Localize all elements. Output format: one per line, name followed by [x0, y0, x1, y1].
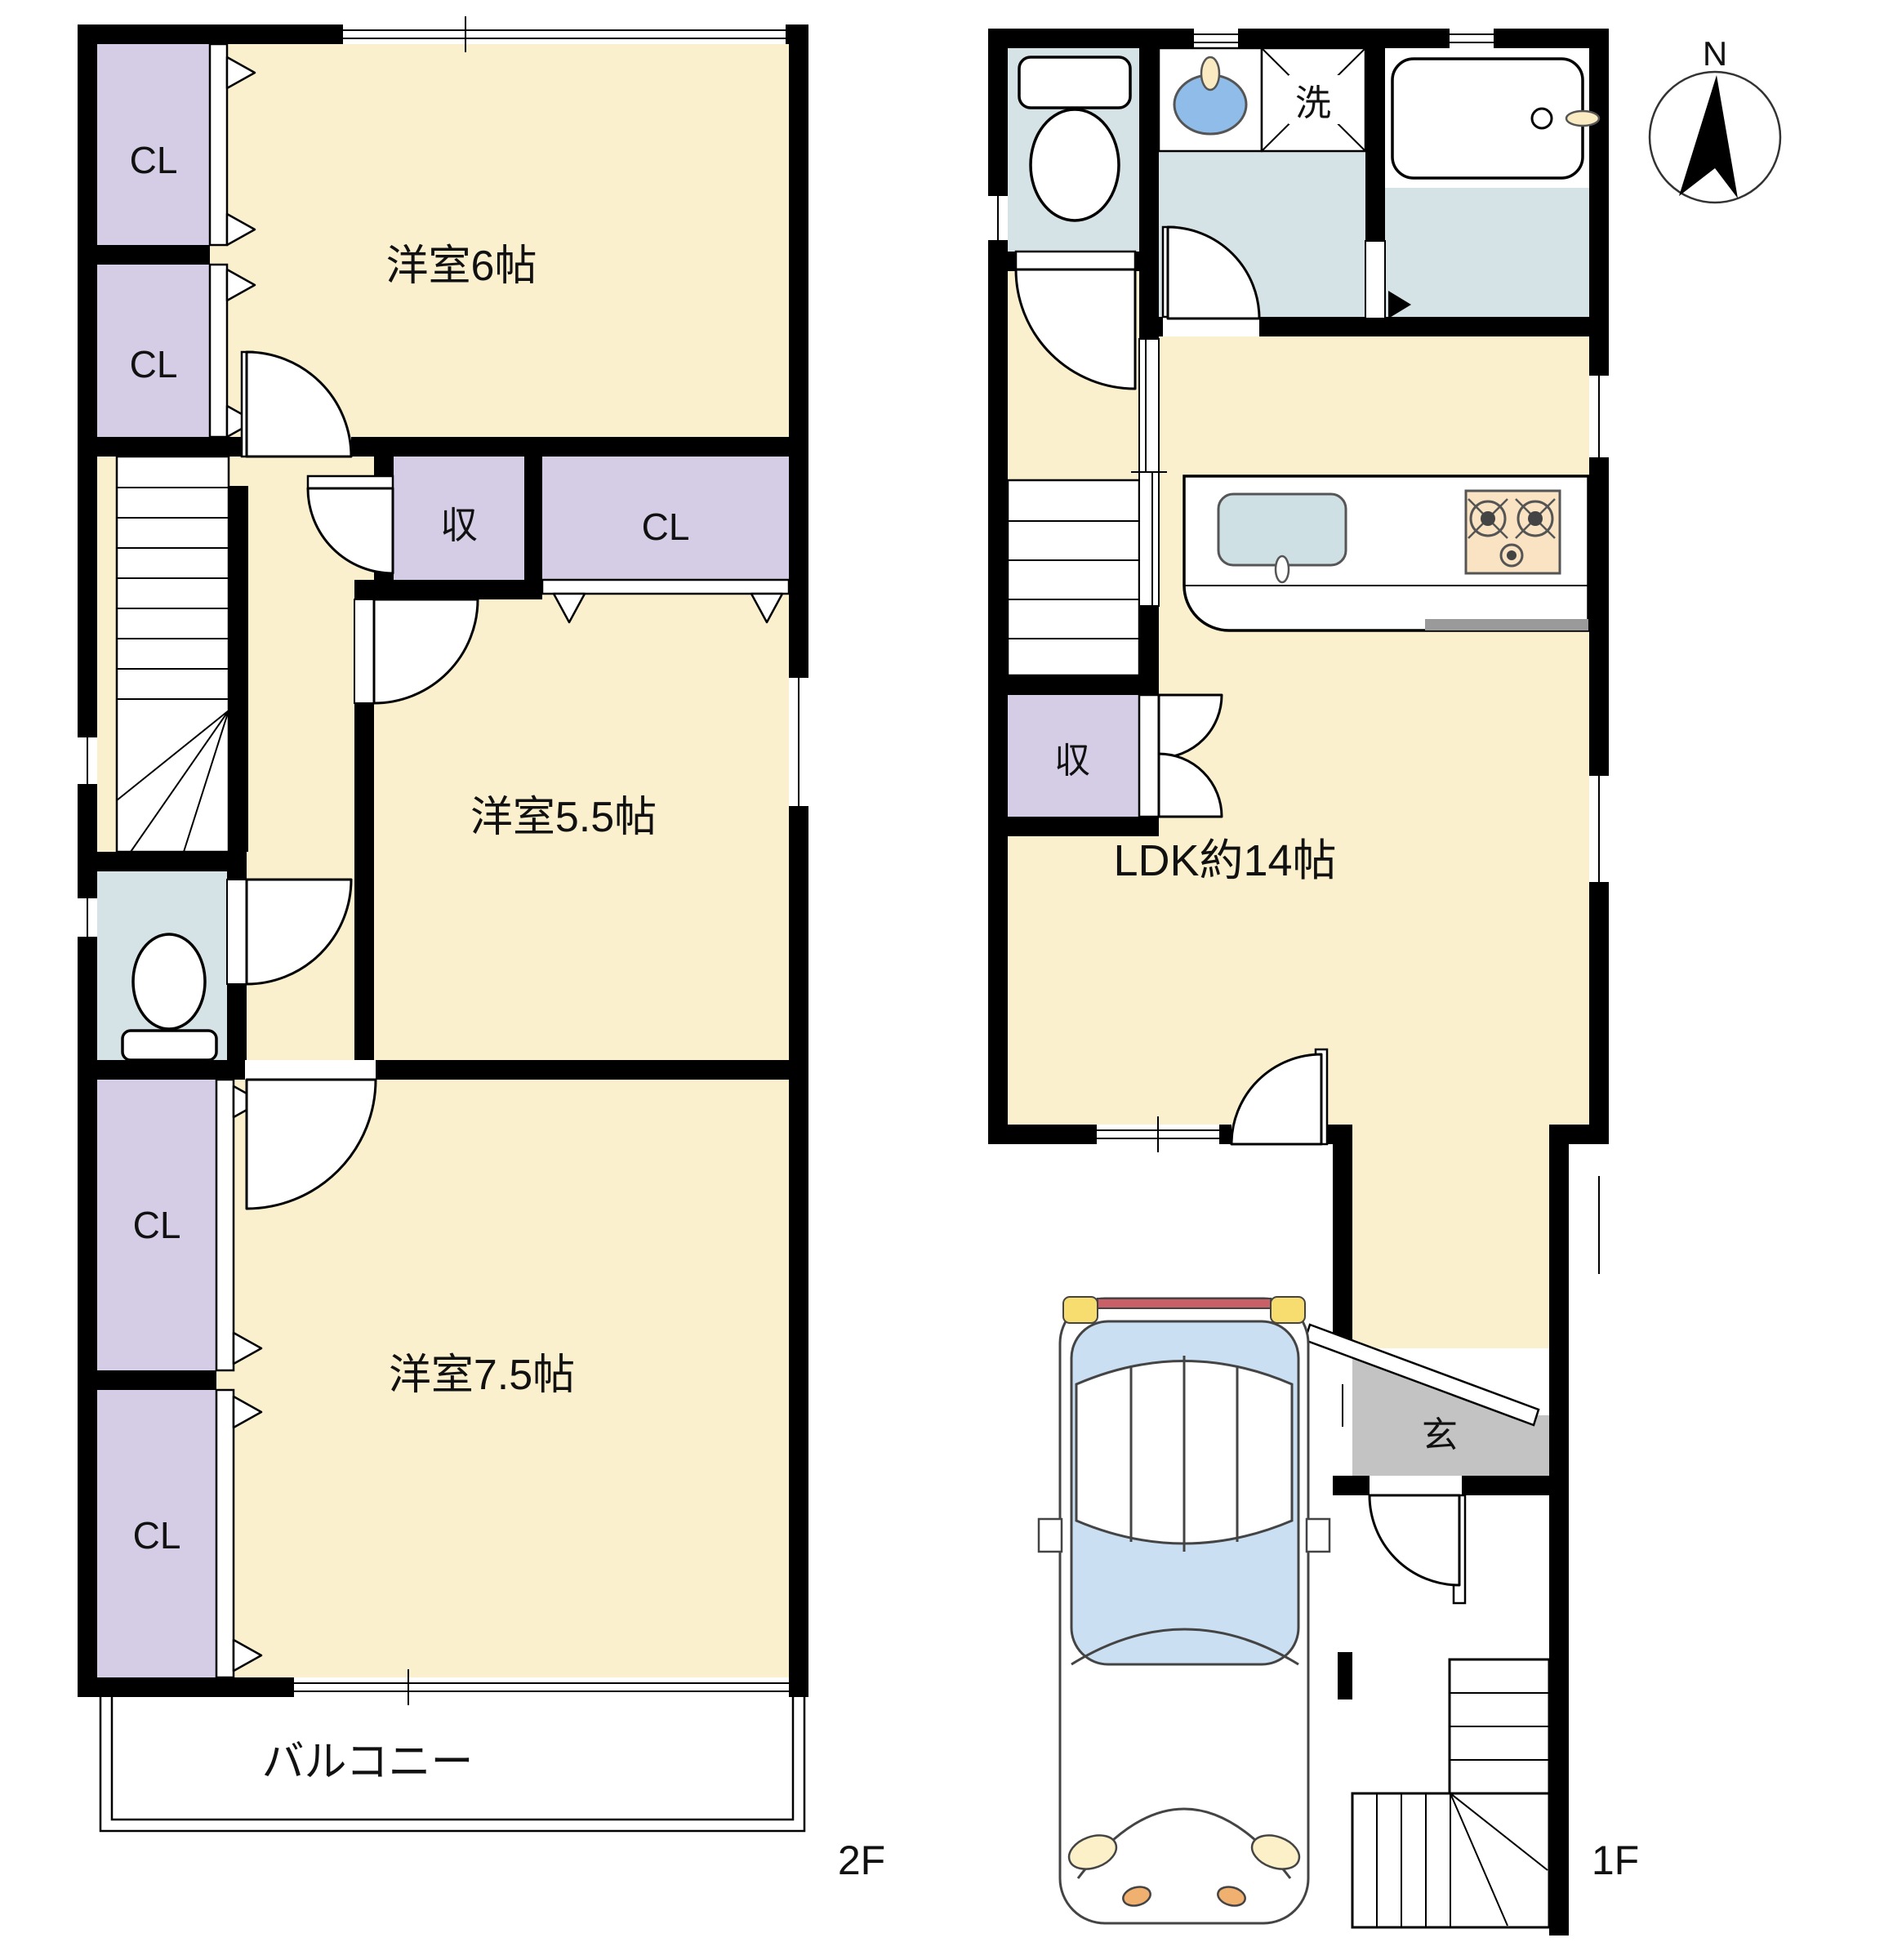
label-balcony: バルコニー [262, 1739, 474, 1786]
kitchen-sink [1218, 494, 1346, 565]
label-closet-mid: CL [642, 506, 690, 548]
vanity-icon [1159, 48, 1262, 151]
outdoor-stairs [1352, 1659, 1549, 1927]
corridor-to-entrance [1352, 1144, 1549, 1348]
bath-floor [1385, 188, 1589, 317]
label-closet-top-2: CL [130, 343, 178, 385]
floor-plan-drawing: N CL CL 洋室6帖 収 CL 洋室5.5帖 CL CL 洋室7.5帖 バル… [0, 0, 1884, 1960]
label-floor2: 2F [838, 1837, 885, 1883]
stairs-2f [117, 457, 229, 852]
kitchen-stove [1466, 491, 1560, 573]
label-closet-bottom-2: CL [133, 1514, 181, 1557]
compass-icon: N [1650, 34, 1780, 203]
label-entrance: 玄 [1422, 1415, 1458, 1455]
label-ldk: LDK約14帖 [1113, 836, 1336, 885]
label-closet-bottom-1: CL [133, 1204, 181, 1246]
compass-north-label: N [1703, 34, 1727, 73]
label-storage-2f: 収 [440, 504, 478, 546]
bathtub-icon [1392, 59, 1599, 178]
label-storage-1f: 収 [1054, 741, 1090, 781]
kitchen-counter [1184, 476, 1588, 630]
label-floor1: 1F [1592, 1837, 1639, 1883]
door-porch [1370, 1495, 1459, 1585]
floor-plan-page: N CL CL 洋室6帖 収 CL 洋室5.5帖 CL CL 洋室7.5帖 バル… [0, 0, 1884, 1960]
label-closet-top-1: CL [130, 139, 178, 181]
car-icon [1039, 1297, 1329, 1923]
floor-1f [988, 29, 1609, 1935]
label-room6: 洋室6帖 [386, 243, 537, 290]
label-room75: 洋室7.5帖 [389, 1352, 575, 1399]
stairs-1f [1008, 480, 1139, 675]
kitchen-faucet [1276, 556, 1289, 582]
label-room55: 洋室5.5帖 [470, 794, 657, 841]
label-laundry: 洗 [1295, 83, 1331, 123]
